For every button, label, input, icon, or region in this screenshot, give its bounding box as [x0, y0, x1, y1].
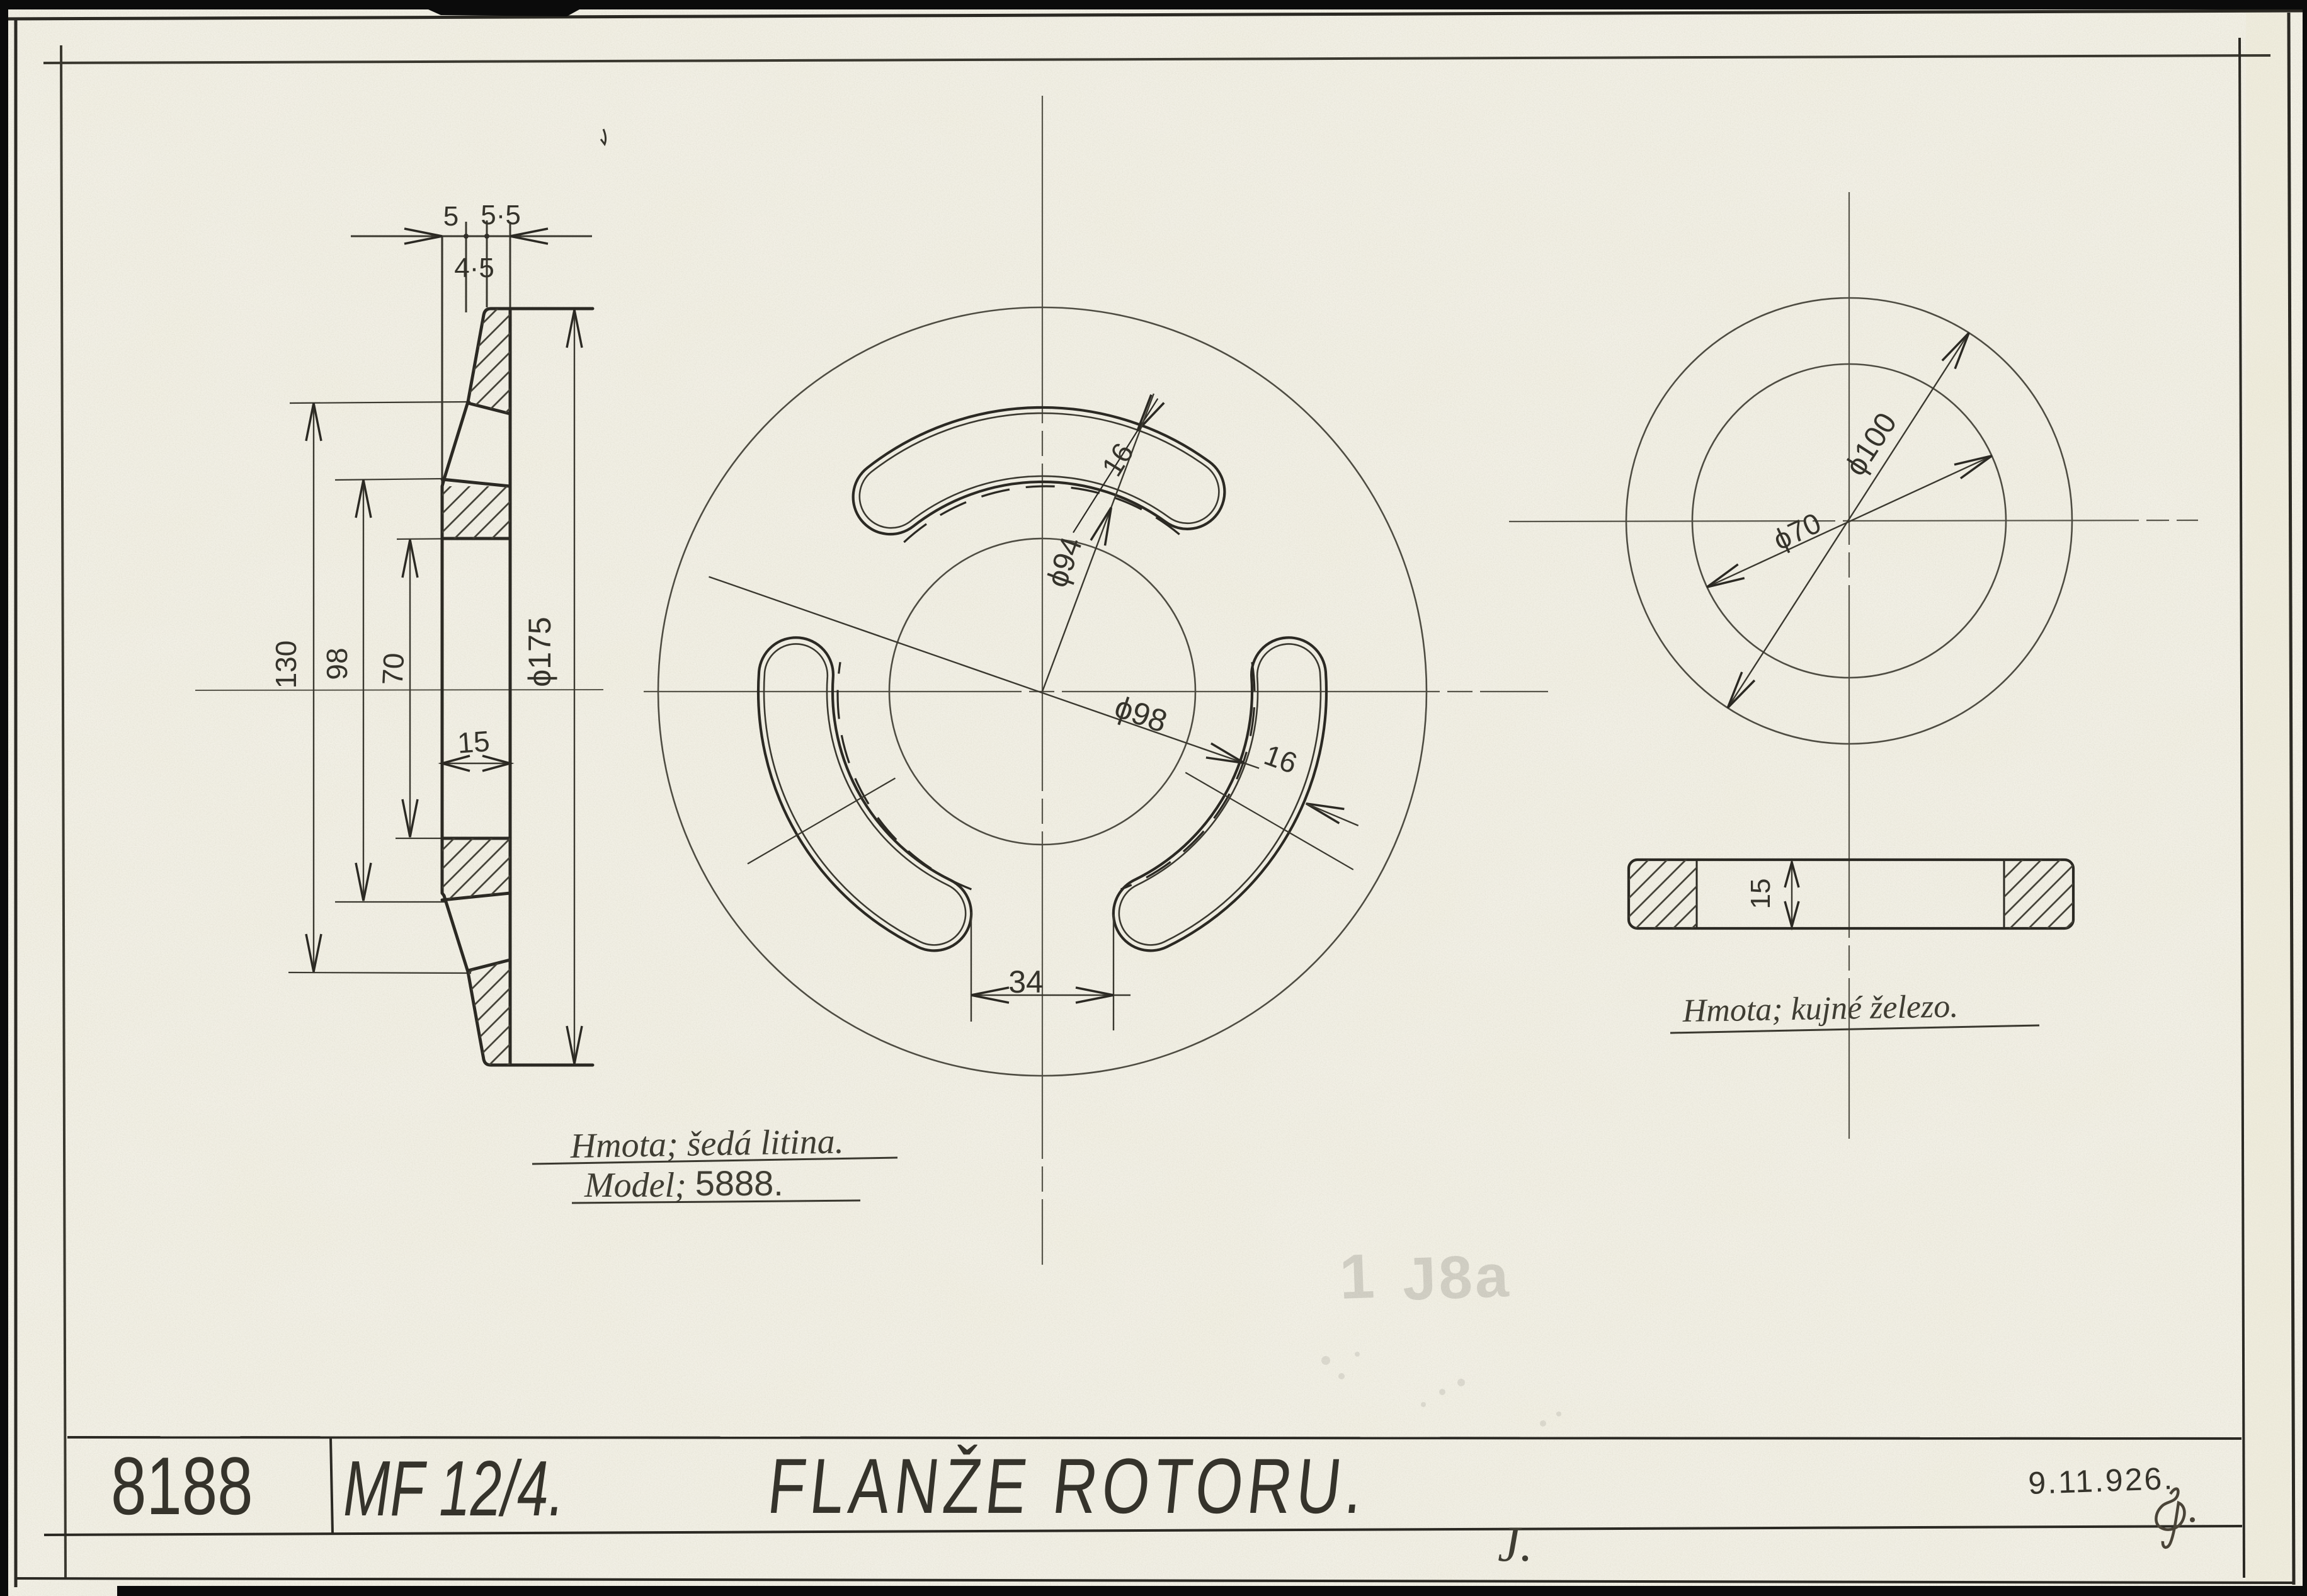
svg-text:5·5: 5·5 — [481, 200, 521, 231]
svg-text:FLANŽE ROTORU.: FLANŽE ROTORU. — [764, 1442, 1372, 1530]
svg-text:9.11.926.: 9.11.926. — [2027, 1461, 2175, 1501]
svg-text:1: 1 — [1338, 1241, 1376, 1313]
svg-text:5: 5 — [443, 201, 459, 232]
svg-text:15: 15 — [1745, 879, 1776, 909]
svg-text:98: 98 — [321, 647, 353, 680]
svg-text:ϕ175: ϕ175 — [522, 617, 557, 687]
svg-text:70: 70 — [376, 652, 411, 686]
svg-text:MF 12/4.: MF 12/4. — [343, 1445, 564, 1532]
svg-text:J8a: J8a — [1401, 1242, 1512, 1313]
svg-text:15: 15 — [457, 724, 491, 759]
svg-text:4·5: 4·5 — [454, 253, 494, 283]
svg-text:Hmota; kujné železo.: Hmota; kujné železo. — [1682, 988, 1958, 1029]
svg-text:34: 34 — [1008, 964, 1044, 1000]
svg-text:8188: 8188 — [111, 1440, 253, 1532]
svg-text:130: 130 — [270, 641, 302, 689]
svg-text:J.: J. — [1498, 1517, 1533, 1572]
svg-text:Model; 5888.: Model; 5888. — [584, 1163, 783, 1205]
